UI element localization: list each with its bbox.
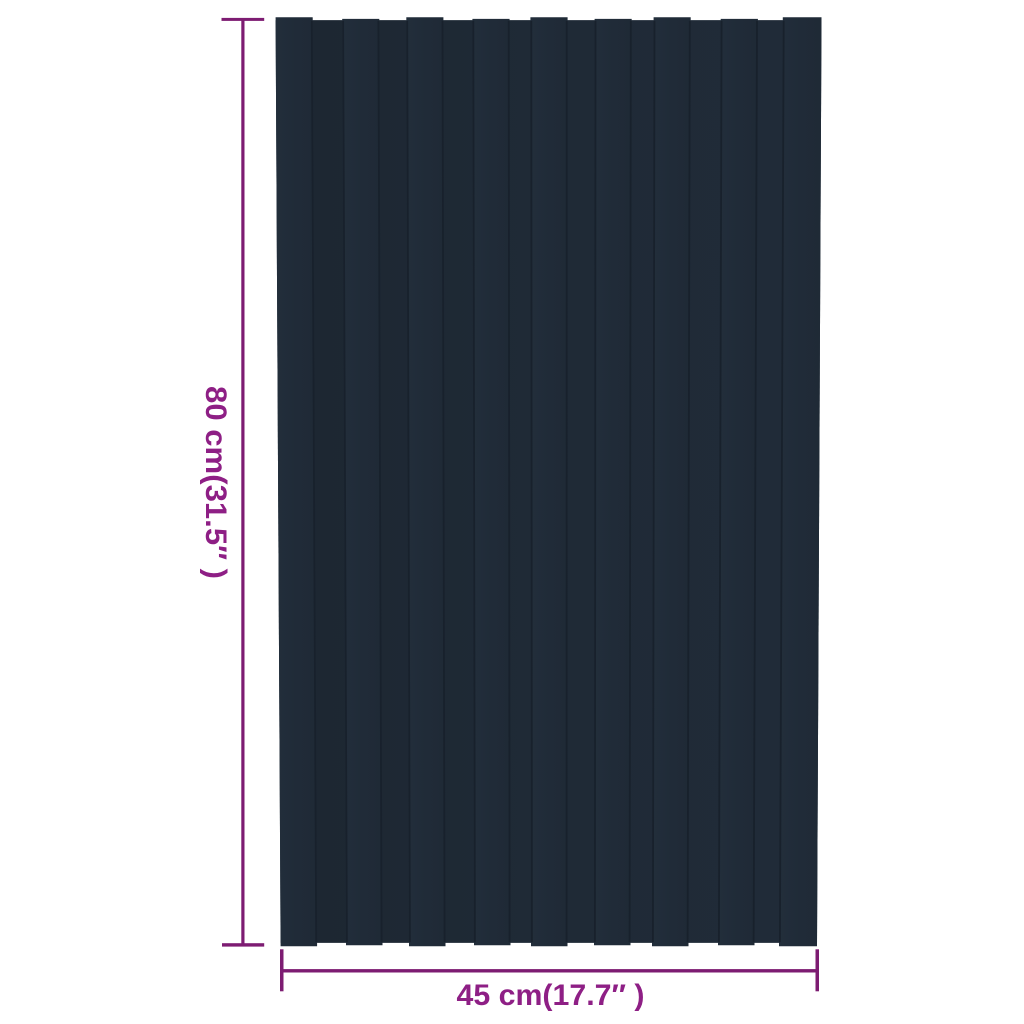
svg-text:80 cm(31.5″ ): 80 cm(31.5″ ) xyxy=(199,386,232,579)
svg-text:45 cm(17.7″ ): 45 cm(17.7″ ) xyxy=(457,979,645,1012)
